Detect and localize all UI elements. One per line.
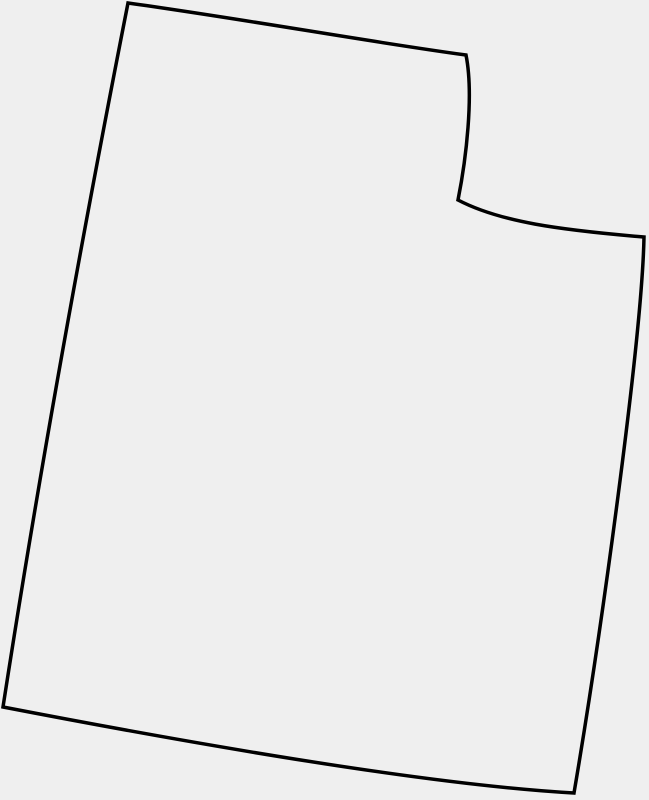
utah-state-outline-path <box>3 3 644 793</box>
utah-outline-map <box>0 0 649 800</box>
map-canvas <box>0 0 649 800</box>
